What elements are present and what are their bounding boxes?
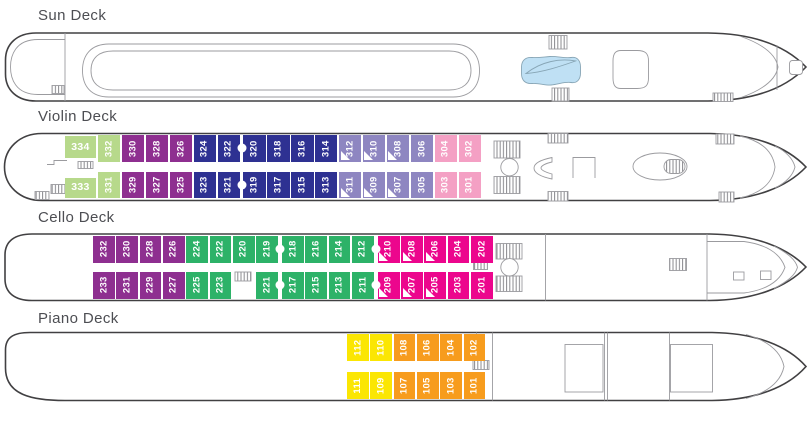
cabin-233: 233 [93,272,115,299]
cabin-220: 220 [233,236,255,263]
cabin-number: 202 [477,241,487,258]
cabin-102: 102 [464,334,486,361]
stairs-icon [552,88,569,101]
cabin-104: 104 [440,334,462,361]
cabin-304: 304 [435,135,457,162]
cabin-number: 333 [71,182,89,193]
cabin-number: 322 [224,140,234,157]
cabin-218: 218 [282,236,304,263]
cabin-number: 314 [322,140,332,157]
cabin-number: 102 [470,339,480,356]
cabin-316: 316 [291,135,313,162]
deck-title-sun: Sun Deck [38,7,106,24]
cabin-229: 229 [140,272,162,299]
cabin-326: 326 [170,135,192,162]
cabin-216: 216 [305,236,327,263]
cabin-232: 232 [93,236,115,263]
cabin-number: 301 [465,176,475,193]
stairs-icon [719,192,734,202]
cabin-number: 222 [216,241,226,258]
cabin-331: 331 [98,172,120,199]
cabin-number: 302 [465,140,475,157]
cabin-number: 220 [239,241,249,258]
cabin-number: 109 [376,377,386,394]
cabin-number: 107 [400,377,410,394]
cabin-333: 333 [65,178,96,198]
cabin-number: 316 [298,140,308,157]
stairs-icon [548,192,568,202]
stairs-icon [549,36,567,50]
cabin-302: 302 [459,135,481,162]
cabin-number: 330 [128,140,138,157]
hull-sun-deck [6,33,807,101]
bow-locker [761,271,772,280]
cabin-112: 112 [347,334,369,361]
cabin-number: 226 [169,241,179,258]
cabin-222: 222 [210,236,232,263]
cabin-number: 103 [446,377,456,394]
cabin-number: 112 [353,339,363,355]
cabin-number: 215 [311,277,321,294]
cabin-105: 105 [417,372,439,399]
connecting-cabin-triangle-icon [426,288,435,297]
cabin-306: 306 [411,135,433,162]
cabin-201: 201 [471,272,493,299]
cabin-number: 214 [335,241,345,258]
cabin-number: 233 [99,277,109,294]
cabin-318: 318 [267,135,289,162]
stairs-icon [235,272,251,281]
deck-title-piano: Piano Deck [38,310,119,327]
cabin-313: 313 [315,172,337,199]
cabin-319: 319 [243,172,265,199]
elevator-icon [501,159,518,176]
connecting-cabin-triangle-icon [379,288,388,297]
cabin-215: 215 [305,272,327,299]
cabin-number: 331 [104,176,114,193]
cabin-328: 328 [146,135,168,162]
cabin-number: 318 [274,140,284,157]
cabin-number: 323 [200,176,210,193]
cabin-327: 327 [146,172,168,199]
cabin-311: 311 [339,172,361,199]
cabin-number: 106 [423,339,433,356]
cabin-312: 312 [339,135,361,162]
elevator-icon [501,259,518,276]
cabin-309: 309 [363,172,385,199]
connecting-cabin-triangle-icon [341,151,350,160]
cabin-109: 109 [370,372,392,399]
cabin-228: 228 [140,236,162,263]
cabin-231: 231 [116,272,138,299]
connecting-cabin-triangle-icon [341,188,350,197]
stairs-icon [35,192,49,200]
connecting-cabin-triangle-icon [364,151,373,160]
cabin-number: 229 [146,277,156,294]
cabin-number: 213 [335,277,345,294]
cabin-307: 307 [387,172,409,199]
cabin-number: 326 [176,140,186,157]
cabin-number: 104 [446,339,456,356]
cabin-208: 208 [401,236,423,263]
cabin-111: 111 [347,372,369,399]
cabin-214: 214 [329,236,351,263]
cabin-number: 317 [274,176,284,193]
cabin-314: 314 [315,135,337,162]
cabin-325: 325 [170,172,192,199]
stairs-icon [494,177,520,194]
connecting-cabin-triangle-icon [364,188,373,197]
cabin-204: 204 [448,236,470,263]
elevator-icon [276,245,285,254]
cabin-210: 210 [378,236,400,263]
cabin-number: 211 [358,277,368,293]
cabin-213: 213 [329,272,351,299]
cabin-number: 332 [104,140,114,157]
cabin-225: 225 [186,272,208,299]
stairs-icon [548,134,568,144]
cabin-number: 203 [454,277,464,294]
cabin-number: 313 [322,176,332,193]
stairs-icon [78,162,93,169]
cabin-number: 218 [288,241,298,258]
connecting-cabin-triangle-icon [403,252,412,261]
cabin-number: 328 [152,140,162,157]
cabin-number: 108 [400,339,410,356]
elevator-icon [371,281,380,290]
cabin-205: 205 [424,272,446,299]
stairs-icon [713,93,733,102]
cabin-number: 223 [216,277,226,294]
cabin-number: 217 [288,277,298,294]
cabin-number: 304 [441,140,451,157]
cabin-110: 110 [370,334,392,361]
cabin-number: 111 [353,378,363,394]
cabin-224: 224 [186,236,208,263]
cabin-number: 305 [417,176,427,193]
cabin-217: 217 [282,272,304,299]
cabin-number: 329 [128,176,138,193]
cabin-226: 226 [163,236,185,263]
cabin-101: 101 [464,372,486,399]
cabin-number: 225 [192,277,202,294]
cabin-number: 327 [152,176,162,193]
cabin-number: 315 [298,176,308,193]
cabin-209: 209 [378,272,400,299]
cabin-206: 206 [424,236,446,263]
cabin-103: 103 [440,372,462,399]
cabin-number: 232 [99,241,109,258]
cabin-number: 324 [200,140,210,157]
cabin-number: 212 [358,241,368,258]
funnel [664,160,685,174]
cabin-number: 224 [192,241,202,258]
cabin-332: 332 [98,135,120,162]
deck-title-violin: Violin Deck [38,108,117,125]
elevator-icon [371,245,380,254]
cabin-number: 219 [262,241,272,258]
stairs-icon [716,134,734,144]
cabin-number: 334 [71,142,89,153]
cabin-310: 310 [363,135,385,162]
cabin-number: 231 [122,277,132,294]
stairs-icon [52,86,64,94]
deck-title-cello: Cello Deck [38,209,115,226]
stairs-icon [496,276,522,292]
cabin-number: 321 [224,176,234,193]
cabin-number: 230 [122,241,132,258]
cabin-number: 101 [470,377,480,394]
cabin-number: 201 [477,277,487,294]
cabin-207: 207 [401,272,423,299]
cabin-number: 306 [417,140,427,157]
cabin-230: 230 [116,236,138,263]
cabin-303: 303 [435,172,457,199]
stairs-icon [496,244,522,260]
cabin-108: 108 [394,334,416,361]
cabin-324: 324 [194,135,216,162]
cabin-315: 315 [291,172,313,199]
cabin-329: 329 [122,172,144,199]
cabin-301: 301 [459,172,481,199]
whirlpool [613,51,649,89]
cabin-334: 334 [65,136,96,159]
cabin-223: 223 [210,272,232,299]
cabin-317: 317 [267,172,289,199]
elevator-icon [237,180,246,189]
cabin-number: 221 [262,277,272,294]
connecting-cabin-triangle-icon [403,288,412,297]
cabin-106: 106 [417,334,439,361]
cabin-number: 320 [250,140,260,157]
elevator-icon [276,281,285,290]
cabin-308: 308 [387,135,409,162]
cabin-107: 107 [394,372,416,399]
cabin-number: 110 [376,339,386,355]
cabin-227: 227 [163,272,185,299]
cabin-number: 105 [423,377,433,394]
cabin-330: 330 [122,135,144,162]
cabin-323: 323 [194,172,216,199]
bow-locker [734,272,745,280]
cabin-number: 303 [441,176,451,193]
cabin-305: 305 [411,172,433,199]
stairs-icon [494,141,520,158]
cabin-203: 203 [448,272,470,299]
cabin-number: 319 [250,176,260,193]
bow-locker [790,61,803,75]
elevator-icon [237,144,246,153]
cabin-number: 325 [176,176,186,193]
stairs-icon [670,259,687,271]
cabin-number: 204 [454,241,464,258]
stairs-icon [473,361,489,370]
connecting-cabin-triangle-icon [388,188,397,197]
connecting-cabin-triangle-icon [388,151,397,160]
connecting-cabin-triangle-icon [379,252,388,261]
ship-deck-plan: Sun Deck Violin Deck Cello Deck Piano De… [0,0,808,422]
cabin-number: 228 [146,241,156,258]
cabin-202: 202 [471,236,493,263]
connecting-cabin-triangle-icon [426,252,435,261]
cabin-320: 320 [243,135,265,162]
cabin-number: 216 [311,241,321,258]
cabin-number: 227 [169,277,179,294]
